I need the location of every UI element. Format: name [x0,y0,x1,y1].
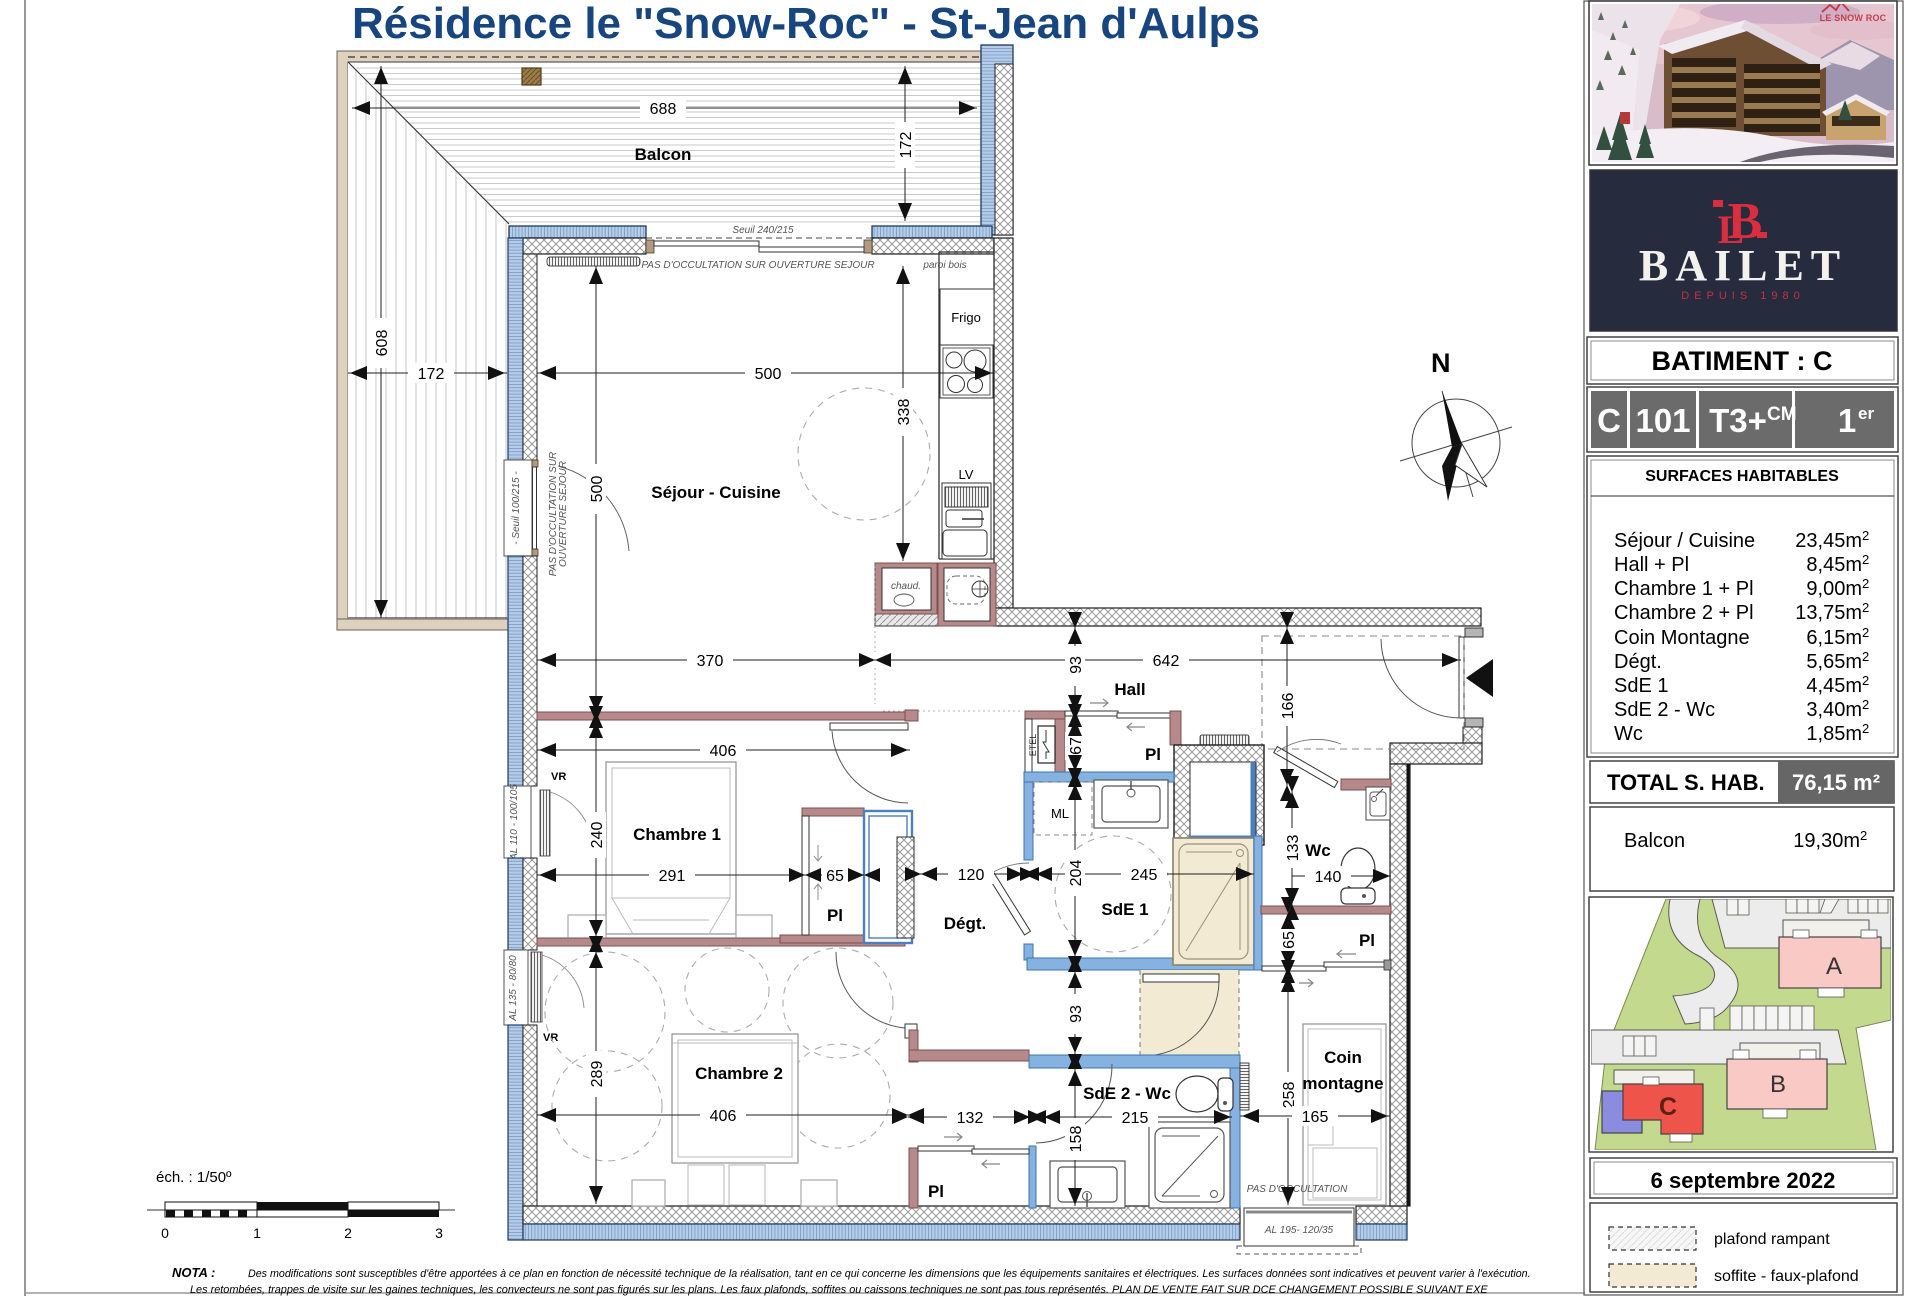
svg-text:165: 165 [1302,1109,1329,1126]
svg-text:406: 406 [710,743,737,760]
svg-text:VR: VR [551,771,566,783]
svg-text:291: 291 [659,868,686,885]
svg-text:DEPUIS 1980: DEPUIS 1980 [1681,290,1804,302]
svg-text:LV: LV [959,467,974,482]
svg-text:2: 2 [1860,828,1867,843]
svg-text:67: 67 [1068,737,1085,755]
svg-text:608: 608 [374,330,391,357]
svg-text:er: er [1858,404,1874,423]
svg-text:Pl: Pl [827,906,843,925]
svg-text:chaud.: chaud. [891,581,921,592]
svg-text:65: 65 [826,868,844,885]
svg-text:338: 338 [896,399,913,426]
svg-text:SdE 1: SdE 1 [1614,675,1668,697]
svg-text:2: 2 [1862,552,1869,567]
svg-text:23,45m: 23,45m [1795,530,1862,552]
svg-text:240: 240 [589,822,606,849]
svg-text:158: 158 [1068,1126,1085,1153]
svg-text:Les retombées, trappes de visi: Les retombées, trappes de visite sur les… [190,1284,1488,1296]
svg-text:2: 2 [1862,625,1869,640]
svg-text:172: 172 [898,132,915,159]
svg-text:Coin Montagne: Coin Montagne [1614,627,1750,649]
svg-text:2: 2 [344,1225,352,1241]
svg-text:2: 2 [1862,576,1869,591]
svg-text:2: 2 [1862,600,1869,615]
svg-text:TOTAL S. HAB.: TOTAL S. HAB. [1607,770,1765,795]
svg-text:258: 258 [1281,1082,1298,1109]
svg-text:5,65m: 5,65m [1806,651,1862,673]
svg-text:plafond rampant: plafond rampant [1714,1231,1830,1248]
svg-text:ML: ML [1051,806,1069,821]
svg-text:133: 133 [1285,835,1302,862]
svg-text:215: 215 [1122,1110,1149,1127]
svg-text:406: 406 [710,1108,737,1125]
svg-text:2: 2 [1862,673,1869,688]
svg-text:Chambre 1: Chambre 1 [633,825,721,844]
svg-text:Hall: Hall [1114,680,1145,699]
svg-text:Wc: Wc [1614,723,1643,745]
svg-text:CM: CM [1767,404,1797,425]
svg-text:120: 120 [958,867,985,884]
svg-text:Résidence le "Snow-Roc" - St-J: Résidence le "Snow-Roc" - St-Jean d'Aulp… [352,0,1260,48]
svg-text:6,15m: 6,15m [1806,627,1862,649]
svg-text:Chambre 1 + Pl: Chambre 1 + Pl [1614,578,1754,600]
svg-text:LE SNOW ROC: LE SNOW ROC [1820,13,1887,23]
svg-text:6 septembre 2022: 6 septembre 2022 [1651,1168,1836,1193]
svg-text:AL 135 - 80/80: AL 135 - 80/80 [508,955,519,1022]
svg-text:soffite - faux-plafond: soffite - faux-plafond [1714,1268,1859,1285]
svg-text:93: 93 [1068,1005,1085,1023]
svg-text:B: B [1770,1071,1786,1098]
svg-text:Frigo: Frigo [951,310,981,325]
svg-text:T3+: T3+ [1709,402,1767,439]
svg-text:AL 110 - 100/105: AL 110 - 100/105 [509,784,520,861]
svg-text:- Seuil 100/215 -: - Seuil 100/215 - [511,471,522,545]
svg-text:245: 245 [1131,867,1158,884]
svg-text:500: 500 [755,366,782,383]
svg-text:BATIMENT : C: BATIMENT : C [1652,346,1833,376]
svg-text:3,40m: 3,40m [1806,699,1862,721]
svg-text:Chambre 2: Chambre 2 [695,1064,783,1083]
svg-text:ETEL: ETEL [1028,734,1038,757]
svg-text:A: A [1826,953,1842,980]
svg-text:132: 132 [957,1110,984,1127]
svg-text:Wc: Wc [1305,841,1331,860]
svg-text:Hall + Pl: Hall + Pl [1614,554,1689,576]
svg-text:Balcon: Balcon [1624,830,1685,852]
svg-text:0: 0 [161,1225,169,1241]
svg-text:101: 101 [1635,402,1690,439]
svg-text:AL 195- 120/35: AL 195- 120/35 [1264,1225,1334,1236]
svg-text:Des modifications sont suscept: Des modifications sont susceptibles d'êt… [248,1268,1531,1280]
svg-text:SURFACES HABITABLES: SURFACES HABITABLES [1645,468,1839,485]
svg-text:BAILET: BAILET [1639,241,1847,290]
svg-text:Pl: Pl [1145,745,1161,764]
svg-text:Coin: Coin [1324,1048,1362,1067]
svg-text:289: 289 [589,1061,606,1088]
svg-text:Balcon: Balcon [635,145,692,164]
svg-text:2: 2 [1862,528,1869,543]
svg-text:93: 93 [1068,656,1085,674]
svg-text:13,75m: 13,75m [1795,602,1862,624]
svg-text:9,00m: 9,00m [1806,578,1862,600]
svg-text:2: 2 [1862,649,1869,664]
svg-text:Dégt.: Dégt. [1614,651,1662,673]
svg-text:Seuil 240/215: Seuil 240/215 [732,225,794,236]
svg-text:1: 1 [253,1225,261,1241]
svg-text:166: 166 [1280,693,1297,720]
svg-text:SdE 1: SdE 1 [1101,900,1148,919]
svg-text:3: 3 [435,1225,443,1241]
svg-text:Pl: Pl [928,1182,944,1201]
svg-text:204: 204 [1068,860,1085,887]
svg-text:1,85m: 1,85m [1806,723,1862,745]
svg-text:N: N [1431,348,1451,378]
svg-text:2: 2 [1862,697,1869,712]
svg-text:OUVERTURE SEJOUR: OUVERTURE SEJOUR [558,461,569,567]
svg-text:Chambre 2 + Pl: Chambre 2 + Pl [1614,602,1754,624]
svg-text:paroi bois: paroi bois [922,260,966,271]
svg-text:PAS D'OCCULTATION: PAS D'OCCULTATION [1247,1184,1348,1195]
svg-text:1: 1 [1838,402,1856,439]
svg-text:65: 65 [1281,931,1298,949]
svg-text:140: 140 [1315,869,1342,886]
svg-text:642: 642 [1153,653,1180,670]
svg-text:Dégt.: Dégt. [944,914,987,933]
svg-text:172: 172 [418,366,445,383]
svg-text:C: C [1597,402,1621,439]
svg-text:NOTA :: NOTA : [172,1265,215,1280]
svg-text:688: 688 [650,101,677,118]
svg-text:76,15 m²: 76,15 m² [1792,770,1880,795]
svg-text:19,30m: 19,30m [1793,830,1860,852]
svg-text:SdE 2 - Wc: SdE 2 - Wc [1083,1084,1171,1103]
svg-text:éch. : 1/50º: éch. : 1/50º [156,1169,232,1186]
svg-text:2: 2 [1862,721,1869,736]
svg-text:PAS D'OCCULTATION SUR OUVERTUR: PAS D'OCCULTATION SUR OUVERTURE SEJOUR [641,260,874,271]
svg-text:montagne: montagne [1302,1074,1383,1093]
svg-text:C: C [1659,1093,1677,1121]
svg-text:Pl: Pl [1359,931,1375,950]
svg-text:4,45m: 4,45m [1806,675,1862,697]
svg-text:500: 500 [589,476,606,503]
svg-text:Séjour - Cuisine: Séjour - Cuisine [651,483,780,502]
svg-text:Séjour / Cuisine: Séjour / Cuisine [1614,530,1755,552]
svg-text:370: 370 [697,653,724,670]
svg-text:8,45m: 8,45m [1806,554,1862,576]
svg-text:SdE 2 - Wc: SdE 2 - Wc [1614,699,1715,721]
